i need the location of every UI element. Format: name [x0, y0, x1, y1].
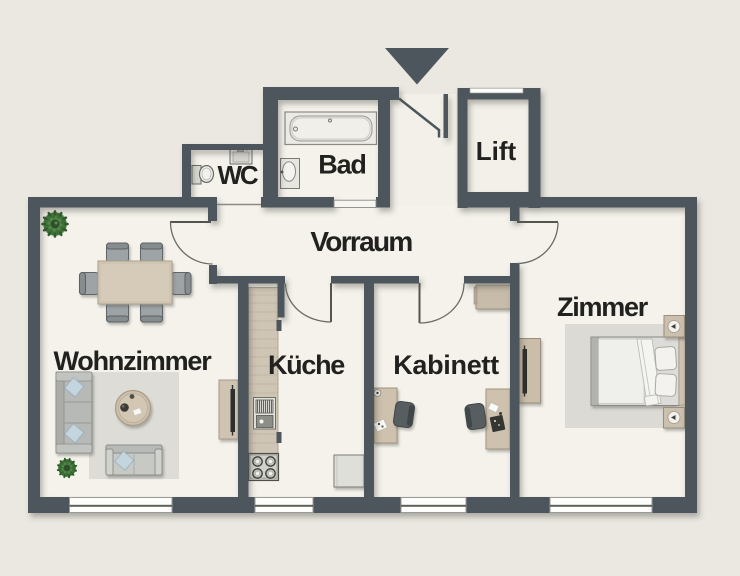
svg-text:WC: WC	[218, 160, 259, 190]
svg-text:Bad: Bad	[318, 150, 365, 180]
svg-text:Kabinett: Kabinett	[393, 350, 499, 380]
svg-text:Küche: Küche	[268, 350, 345, 380]
svg-text:Vorraum: Vorraum	[310, 226, 412, 257]
svg-text:Wohnzimmer: Wohnzimmer	[53, 346, 212, 376]
svg-text:Zimmer: Zimmer	[557, 292, 649, 322]
svg-text:Lift: Lift	[476, 136, 517, 166]
